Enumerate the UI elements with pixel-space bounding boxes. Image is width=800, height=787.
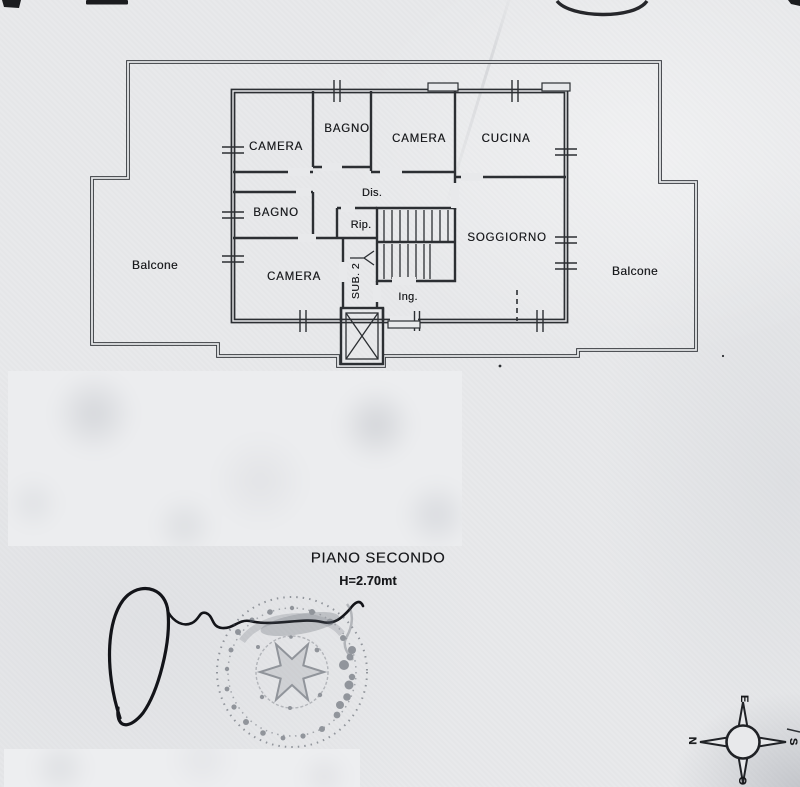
room-label-ripostiglio: Rip. <box>351 219 372 231</box>
elevator-shaft <box>341 308 383 364</box>
room-label-balcone-right: Balcone <box>612 264 658 278</box>
room-label-sub-2: SUB. 2 <box>350 263 362 299</box>
apartment-perimeter-wall <box>233 91 566 321</box>
room-label-bagno-middle: BAGNO <box>253 207 299 219</box>
floor-title: PIANO SECONDO <box>311 550 446 567</box>
compass-label-north: N <box>686 737 698 746</box>
redaction-blur-bottom <box>4 749 360 787</box>
ceiling-height-note: H=2.70mt <box>339 574 397 588</box>
interior-walls <box>233 91 566 321</box>
room-label-camera-top-middle: CAMERA <box>392 133 446 145</box>
room-label-ingresso: Ing. <box>398 291 418 303</box>
redaction-blur-bottom-texture <box>4 749 360 787</box>
room-label-soggiorno: SOGGIORNO <box>467 232 546 244</box>
room-label-camera-bottom-left: CAMERA <box>267 271 321 283</box>
scanned-floorplan-page: CAMERA BAGNO CAMERA CUCINA Dis. BAGNO Ri… <box>0 0 800 787</box>
room-label-cucina: CUCINA <box>482 133 531 145</box>
scan-artifacts-top <box>2 0 800 15</box>
compass-label-east: E <box>738 695 750 703</box>
compass-label-south: S <box>787 738 799 746</box>
official-stamp <box>217 597 367 747</box>
room-label-balcone-left: Balcone <box>132 258 178 272</box>
room-label-disimpegno: Dis. <box>362 187 382 199</box>
scan-specks <box>499 355 800 732</box>
redaction-blur-large <box>8 371 462 546</box>
compass-label-west: O <box>736 776 748 785</box>
room-label-camera-top-left: CAMERA <box>249 141 303 153</box>
room-label-bagno-top: BAGNO <box>324 123 370 135</box>
redaction-blur-large-texture <box>8 371 462 546</box>
compass-rose-icon <box>700 702 786 783</box>
door-openings <box>288 163 483 326</box>
